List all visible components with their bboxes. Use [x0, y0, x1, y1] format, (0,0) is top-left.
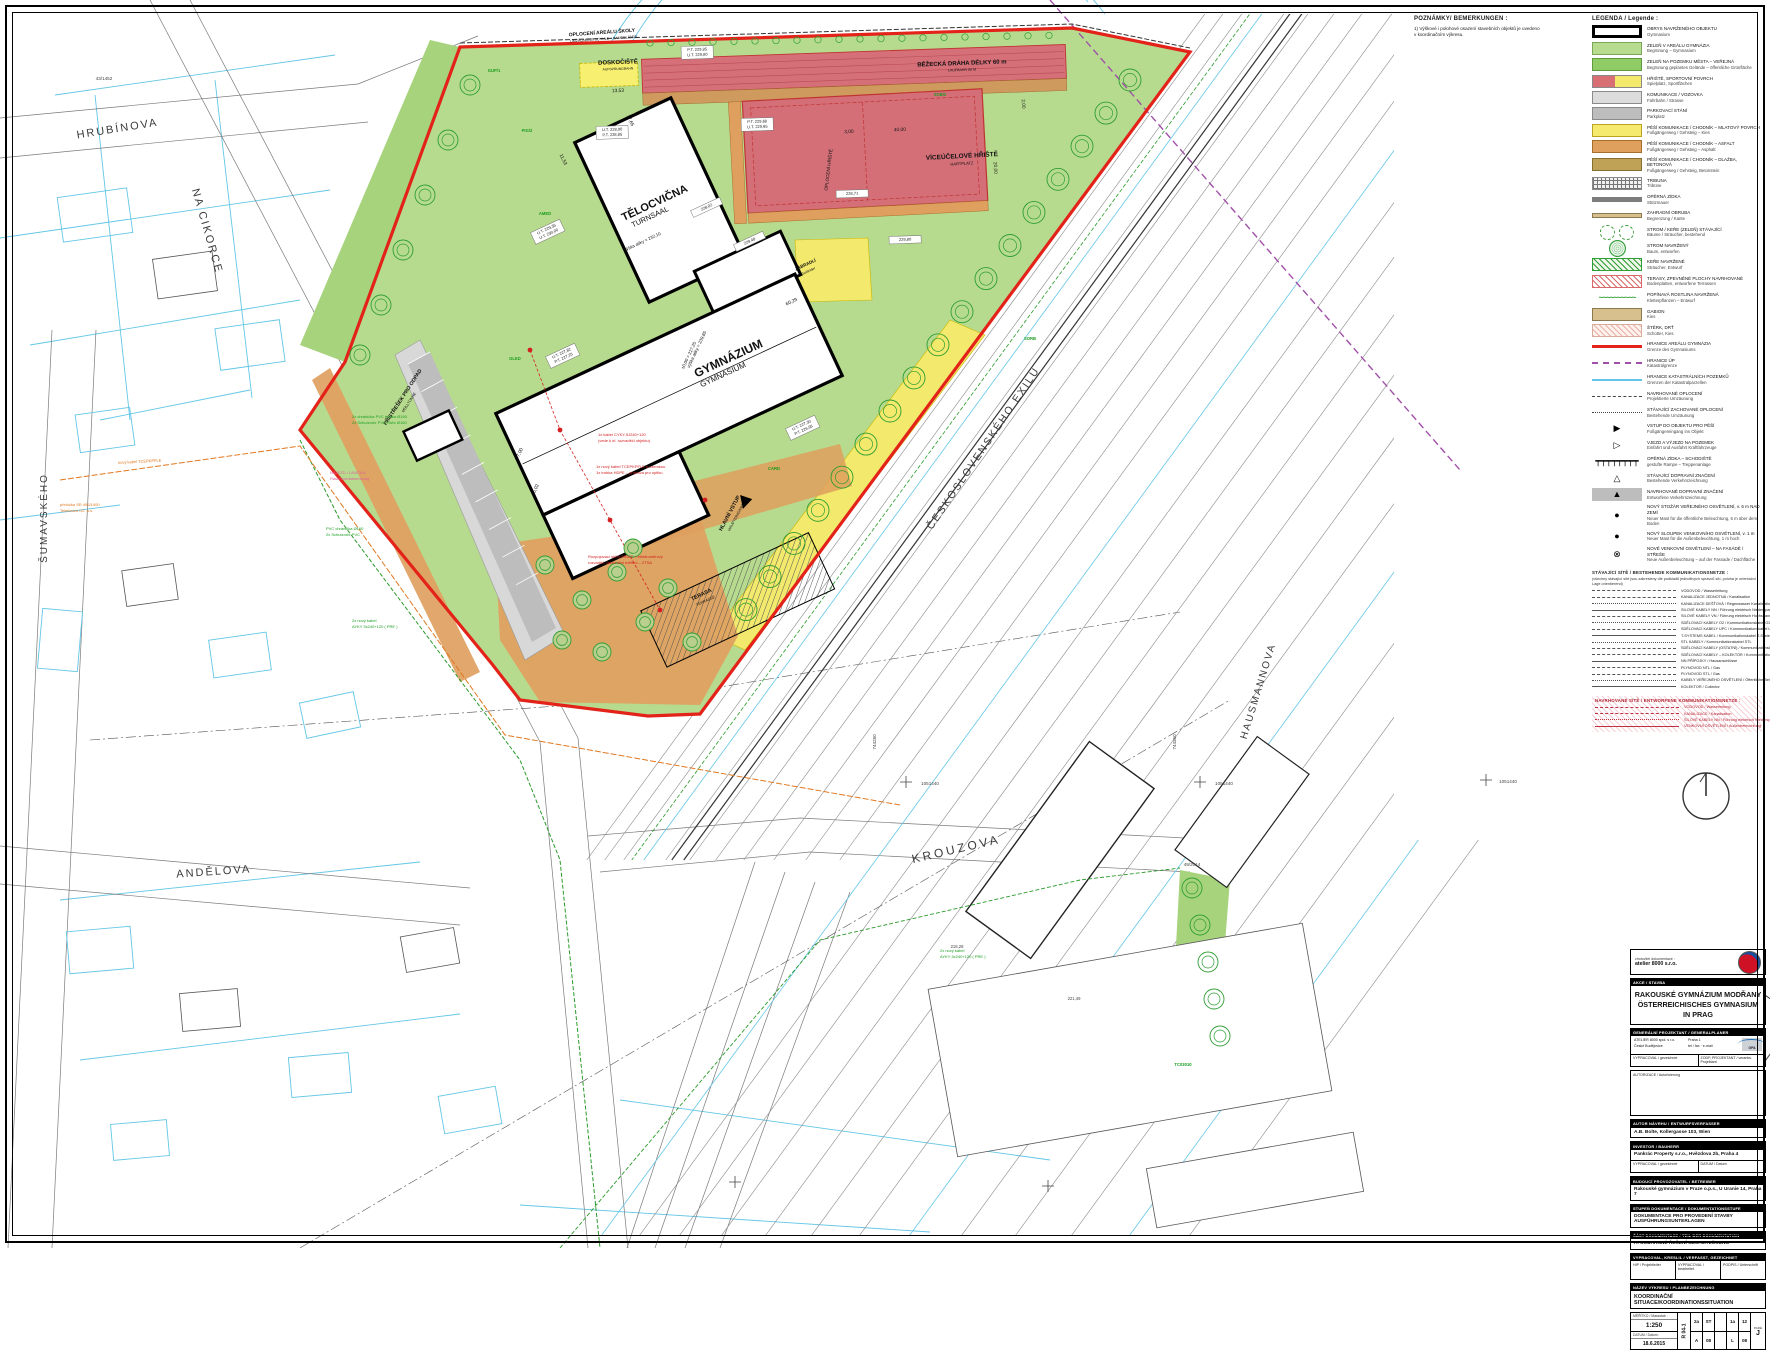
- map-label: 2x nový kabel: [940, 948, 965, 953]
- author-header: AUTOR NÁVRHU / ENTWURFSVERFASSER: [1631, 1120, 1765, 1127]
- grid-cell: A: [1691, 1332, 1703, 1350]
- legend-item: STROM / KEŘE (ZELEŇ) STÁVAJÍCÍBäume / St…: [1592, 226, 1762, 239]
- utility-line-swatch: [1592, 667, 1676, 668]
- legend-item: ▷VJEZD A VÝJEZD NA POZEMEKEinfahrt und A…: [1592, 439, 1762, 452]
- project-box: AKCE / STAVBA RAKOUSKÉ GYMNÁZIUM MODŘANY…: [1630, 978, 1766, 1025]
- team-header: VYPRACOVAL, KRESLIL / VERFASST, GEZEICHN…: [1631, 1254, 1765, 1261]
- utility-line-swatch: [1592, 622, 1676, 623]
- legend-item: ZAHRADNÍ OBRUBABegrenzung / Kante: [1592, 209, 1762, 222]
- existing-tree-icon: [1592, 226, 1642, 239]
- new-light-pole-icon: ●: [1592, 509, 1642, 522]
- grid-cell: ST: [1703, 1313, 1715, 1331]
- paved-path-swatch: [1592, 158, 1642, 171]
- map-label: 744360: [1172, 734, 1177, 750]
- vehicle-entrance-icon: ▷: [1592, 439, 1642, 452]
- utility-line-item: SDĚLOVACÍ KABELY – KOLEKTOR / Kommunikat…: [1592, 653, 1762, 657]
- utility-line-item: T-SYSTEMS KABEL / Kommunikationskabel T-…: [1592, 634, 1762, 638]
- grid-cell: L: [1727, 1332, 1739, 1350]
- legend-item-label: OPĚRNÁ ZÍDKAStützmauer: [1647, 194, 1681, 205]
- utility-line-item: KANALIZACE DEŠŤOVÁ / Regenwasser Kanalis…: [1592, 602, 1762, 606]
- responsible-cell: ZODP. PROJEKTANT / verantw. Projektant: [1699, 1055, 1766, 1067]
- legend-item: GABIONKies: [1592, 308, 1762, 321]
- map-label: 43/1452: [96, 76, 113, 81]
- map-label: 13,53: [612, 88, 625, 94]
- map-label: 3,00: [844, 129, 854, 135]
- utility-line-item: VODOVOD / Wasserleitung: [1592, 589, 1762, 593]
- legend-item-label: GABIONKies: [1647, 309, 1665, 320]
- utility-line-swatch: [1595, 719, 1679, 720]
- map-label: NÁJEZD / LAVIČKA: [330, 470, 366, 475]
- map-label: ŠUMAVSKÉHO: [37, 473, 50, 563]
- legend-item: ●NOVÝ STOŽÁR VEŘEJNÉHO OSVĚTLENÍ, v. 6 m…: [1592, 504, 1762, 526]
- utility-line-swatch: [1592, 661, 1676, 662]
- map-label: ANDĚLOVA: [176, 862, 252, 880]
- utility-line-swatch: [1592, 674, 1676, 675]
- legend-item-label: KOMUNIKACE / VOZOVKAFahrbahn / Strasse: [1647, 92, 1703, 103]
- gabion-swatch: [1592, 308, 1642, 321]
- utility-line-item: KABELY VEŘEJNÉHO OSVĚTLENÍ / Öffentliche…: [1592, 678, 1762, 682]
- legend-item-label: OPĚRNÁ ZÍDKA – SCHODIŠTĚgestufte Rampe –…: [1647, 456, 1712, 467]
- legend-item-label: ZAHRADNÍ OBRUBABegrenzung / Kante: [1647, 210, 1690, 221]
- plan-boundary-line: [1050, 0, 1460, 470]
- map-label: 2x chránička PVC trubka Ø160: [352, 414, 408, 419]
- svg-text:228,71: 228,71: [846, 191, 859, 196]
- legend-item: HRANICE KATASTRÁLNÍCH POZEMKŮGrenzen der…: [1592, 373, 1762, 386]
- utility-line-swatch: [1592, 635, 1676, 636]
- utility-line-swatch: [1592, 648, 1676, 649]
- utility-line-item: KOLEKTOR / Collector: [1592, 685, 1762, 689]
- investor-value: Pankrác Property s.r.o., Hvězdova 2b, Pr…: [1631, 1150, 1765, 1160]
- north-arrow-icon: [1683, 773, 1729, 819]
- site-plan-drawing: P.T. 229,85U.T. 229,80U.T. 228,90P.T. 22…: [0, 0, 1770, 1248]
- legend-item-label: NOVÝ SLOUPEK VENKOVNÍHO OSVĚTLENÍ, v. 1 …: [1647, 531, 1754, 542]
- author-box: AUTOR NÁVRHU / ENTWURFSVERFASSER A.B. Bo…: [1630, 1119, 1766, 1138]
- legend-item: STÁVAJÍCÍ ZACHOVANÉ OPLOCENÍBestehende U…: [1592, 406, 1762, 419]
- legend-title: LEGENDA / Legende :: [1592, 16, 1762, 22]
- pare-cell: PARÉ J: [1751, 1313, 1765, 1349]
- utility-line-swatch: [1592, 616, 1676, 617]
- grid-cell: 12: [1739, 1313, 1751, 1331]
- investor-header: INVESTOR / BAUHERR: [1631, 1142, 1765, 1149]
- utility-line-item: SILOVÉ KABELY NN / Führung elektrisch Ni…: [1592, 608, 1762, 612]
- legend-item-label: NAVRHOVANÉ DOPRAVNÍ ZNAČENÍEntworfene Ve…: [1647, 489, 1723, 500]
- legend-item-label: ZELEŇ NA POZEMKU MĚSTA – VEŘEJNÁBegrünun…: [1647, 59, 1752, 70]
- legend-item: ▲NAVRHOVANÉ DOPRAVNÍ ZNAČENÍEntworfene V…: [1592, 488, 1762, 501]
- map-label: (vede k el. rozvaděči objektu): [598, 438, 651, 443]
- map-label: nový kabel TCEPKPFLE: [118, 458, 162, 465]
- map-label: TC03010: [1174, 1062, 1192, 1067]
- operator-box: BUDOUCÍ PROVOZOVATEL / BETREIBER Rakousk…: [1630, 1176, 1766, 1200]
- operator-value: Rakouské gymnázium v Praze o.p.s., U Ura…: [1631, 1185, 1765, 1200]
- legend-item-label: NOVÝ STOŽÁR VEŘEJNÉHO OSVĚTLENÍ, v. 6 m …: [1647, 504, 1762, 526]
- legend-item-label: POPÍNAVÁ ROSTLINA NAVRŽENÁKletterpflanze…: [1647, 292, 1719, 303]
- legend-item: ⊗NOVÉ VENKOVNÍ OSVĚTLENÍ – NA FASÁDĚ / S…: [1592, 546, 1762, 563]
- map-label: GUP/1: [488, 68, 501, 73]
- map-label: 1051440: [1499, 779, 1517, 784]
- utility-line-item: VENKOVNÍ OSVĚTLENÍ / Außenbeleuchtung: [1595, 724, 1759, 728]
- map-label: 49/2014: [1184, 862, 1201, 867]
- legend-item: ┯┯┯┯┯┯┯┯OPĚRNÁ ZÍDKA – SCHODIŠTĚgestufte…: [1592, 455, 1762, 468]
- grid-cell: 08: [1739, 1332, 1751, 1350]
- map-label: 2,00: [1020, 99, 1026, 109]
- firm-box: zhotovitel dokumentace : atelier 8000 s.…: [1630, 949, 1766, 975]
- investor-box: INVESTOR / BAUHERR Pankrác Property s.r.…: [1630, 1141, 1766, 1173]
- new-light-bollard-icon: ●: [1592, 530, 1642, 543]
- parking-swatch: [1592, 107, 1642, 120]
- legend-item-label: VSTUP DO OBJEKTU PRO PĚŠÍFußgängereingan…: [1647, 423, 1714, 434]
- plan-boundary-line: [1592, 362, 1642, 364]
- legend-item: KOMUNIKACE / VOZOVKAFahrbahn / Strasse: [1592, 91, 1762, 104]
- legend-item: ZELEŇ NA POZEMKU MĚSTA – VEŘEJNÁBegrünun…: [1592, 58, 1762, 71]
- utility-line-item: PLYNOVOD STL / Gas: [1592, 672, 1762, 676]
- utility-line-swatch: [1592, 680, 1676, 681]
- map-label: HRUBÍNOVA: [76, 116, 160, 142]
- map-label: SOB/2: [934, 92, 947, 97]
- drawn-by-cell: VYPRACOVAL / gezeichnet: [1631, 1055, 1699, 1067]
- map-label: 1x kabel CYKY-5J240+120: [598, 432, 647, 437]
- scale-label: MĚŘÍTKO / Massstab :: [1631, 1313, 1677, 1320]
- legend-item: HŘIŠTĚ, SPORTOVNÍ POVRCHSpielplatz, Spor…: [1592, 75, 1762, 88]
- utility-line-swatch: [1592, 597, 1676, 598]
- building-outline-swatch: [1592, 25, 1642, 38]
- utility-line-item: SDĚLOVACÍ KABELY O2 / Kommunikationskabe…: [1592, 621, 1762, 625]
- stage-box: STUPEŇ DOKUMENTACE / DOKUMENTATIONSSTUFE…: [1630, 1204, 1766, 1228]
- project-header: AKCE / STAVBA: [1631, 979, 1765, 986]
- legend-item-label: PARKOVACÍ STÁNÍParkplatz: [1647, 108, 1687, 119]
- legend-item: ŠTĚRK, DRŤSchotter, Kies: [1592, 324, 1762, 337]
- notes-title: POZNÁMKY/ BEMERKUNGEN :: [1414, 16, 1582, 22]
- utility-line-item: VODOVOD / Wasserleitung: [1595, 705, 1759, 709]
- utility-line-item: SILOVÉ KABELY VN / Führung elektrisch Ho…: [1592, 614, 1762, 618]
- svg-text:P.T. 228,85: P.T. 228,85: [602, 132, 623, 138]
- utility-line-item: SDĚLOVACÍ KABELY UPC / Kommunikationskab…: [1592, 627, 1762, 631]
- utility-line-swatch: [1592, 642, 1676, 643]
- firm-name: atelier 8000 s.r.o.: [1635, 961, 1677, 967]
- utility-line-swatch: [1592, 629, 1676, 630]
- terrace-hatch-swatch: [1592, 275, 1642, 288]
- title-block: zhotovitel dokumentace : atelier 8000 s.…: [1630, 946, 1766, 1350]
- stage-value: DOKUMENTACE PRO PROVEDENÍ STAVBY AUSFÜHR…: [1631, 1212, 1765, 1227]
- existing-fence-line: [1592, 412, 1642, 413]
- scale-value: 1:250: [1631, 1320, 1677, 1331]
- new-utilities-block: NAVRHOVANÉ SÍTĚ / ENTWORFENE KOMMUNIKATI…: [1592, 696, 1762, 733]
- legend-item-label: PĚŠÍ KOMUNIKACE / CHODNÍK – ASFALTFußgän…: [1647, 141, 1734, 152]
- utility-line-swatch: [1592, 654, 1676, 655]
- legend-item: HRANICE AREÁLU GYMNÁZIAGrenze des Gymnas…: [1592, 340, 1762, 353]
- plan-name-header: NÁZEV VÝKRESU / PLANBEZEICHNUNG: [1631, 1284, 1765, 1291]
- pedestrian-entrance-icon: ▶: [1592, 422, 1642, 435]
- asphalt-path-swatch: [1592, 140, 1642, 153]
- garden-curb-swatch: [1592, 213, 1642, 218]
- legend-item: TRIBUNATribüne: [1592, 177, 1762, 190]
- site-boundary-line: [1592, 345, 1642, 348]
- map-label: 1x trubka HDPE – příprava pro optiku: [596, 470, 662, 475]
- svg-text:U.T. 229,65: U.T. 229,65: [747, 124, 768, 130]
- general-planner-header: GENERÁLNÍ PROJEKTANT / GENERALPLANER: [1631, 1029, 1765, 1036]
- legend-item: POPÍNAVÁ ROSTLINA NAVRŽENÁKletterpflanze…: [1592, 291, 1762, 304]
- legend-item-label: PĚŠÍ KOMUNIKACE / CHODNÍK – DLAŽBA, BETO…: [1647, 157, 1762, 174]
- author-value: A.B. Bolte, Kollergasse 103, Wien: [1631, 1128, 1765, 1138]
- map-label: Telefónica O2, a.s.: [60, 508, 93, 513]
- gpa-logo-icon: GPA: [1742, 1038, 1762, 1051]
- map-label: AYKY 3x240+120 ( PRE ): [940, 954, 986, 959]
- grid-cell: [1715, 1313, 1727, 1331]
- climbing-plant-icon: [1592, 291, 1642, 304]
- legend-item-label: PĚŠÍ KOMUNIKACE / CHODNÍK – MLATOVÝ POVR…: [1647, 125, 1760, 136]
- map-label: 744280: [872, 734, 877, 750]
- legend-item: TERASY, ZPEVNĚNÉ PLOCHY NAVRHOVANÉBodenp…: [1592, 275, 1762, 288]
- legend-item: ▶VSTUP DO OBJEKTU PRO PĚŠÍFußgängereinga…: [1592, 422, 1762, 435]
- utility-line-swatch: [1595, 707, 1679, 708]
- map-label: 2x Schutzrohr PVC Rohr Ø160: [352, 420, 407, 425]
- legend-item-label: TRIBUNATribüne: [1647, 178, 1667, 189]
- legend-item-label: HŘIŠTĚ, SPORTOVNÍ POVRCHSpielplatz, Spor…: [1647, 76, 1713, 87]
- legend-items: OBRYS NAVRŽENÉHO OBJEKTUGymnasiumZELEŇ V…: [1592, 25, 1762, 562]
- legend-item-label: OBRYS NAVRŽENÉHO OBJEKTUGymnasium: [1647, 26, 1717, 37]
- map-label: HAUSMANNOVA: [1239, 642, 1279, 740]
- new-tree-icon: [1592, 242, 1642, 255]
- team-box: VYPRACOVAL, KRESLIL / VERFASST, GEZEICHN…: [1630, 1253, 1766, 1280]
- legend-item: STROM NAVRŽENÝBaum, entworfen: [1592, 242, 1762, 255]
- map-label: 1051440: [1215, 781, 1233, 786]
- legend-item: ZELEŇ V AREÁLU GYMNÁZIABegrünung – Gymna…: [1592, 42, 1762, 55]
- legend-item-label: STÁVAJÍCÍ ZACHOVANÉ OPLOCENÍBestehende U…: [1647, 407, 1723, 418]
- utility-line-item: KANALIZACE / Kanalisation: [1595, 712, 1759, 716]
- facade-light-icon: ⊗: [1592, 548, 1642, 561]
- svg-text:U.T. 229,80: U.T. 229,80: [687, 52, 708, 58]
- stage-header: STUPEŇ DOKUMENTACE / DOKUMENTATIONSSTUFE: [1631, 1205, 1765, 1212]
- map-label: 40,00: [894, 127, 907, 134]
- notes-body: 1) Výškové i polohové osazení stavebních…: [1414, 26, 1582, 39]
- legend-item-label: HRANICE ÚPKatastralgrenze: [1647, 358, 1677, 369]
- legend-item: HRANICE ÚPKatastralgrenze: [1592, 357, 1762, 370]
- map-label: PVC chránička Ø160: [326, 526, 364, 531]
- date-value: 18.6.2015: [1631, 1339, 1677, 1349]
- legend-item: OPĚRNÁ ZÍDKAStützmauer: [1592, 193, 1762, 206]
- map-label: KROUZOVA: [910, 832, 1001, 866]
- map-label: 1x nový kabel TCEPKPFLE s uzemkou: [596, 464, 665, 469]
- operator-header: BUDOUCÍ PROVOZOVATEL / BETREIBER: [1631, 1177, 1765, 1184]
- map-label: AMED: [539, 211, 551, 216]
- plan-name-box: NÁZEV VÝKRESU / PLANBEZEICHNUNG KOORDINA…: [1630, 1283, 1766, 1309]
- svg-text:229,80: 229,80: [899, 237, 912, 242]
- part-value: A. SOUHRNNÉ ŘEŠENÍ GESAMTLÖSUNG: [1631, 1239, 1765, 1249]
- legend-item: OBRYS NAVRŽENÉHO OBJEKTUGymnasium: [1592, 25, 1762, 38]
- elevation-label: P.T. 229,68U.T. 229,65: [741, 117, 773, 131]
- drawing-number: R 04-1: [1678, 1313, 1691, 1349]
- stairs-ramp-icon: ┯┯┯┯┯┯┯┯: [1592, 455, 1642, 468]
- map-label: přeložka SR 496/1400: [60, 502, 100, 507]
- utility-line-swatch: [1595, 713, 1679, 714]
- map-label: 221,49: [1068, 996, 1081, 1001]
- map-label: rozvaděč, fakturační měření – 2TSA: [588, 560, 652, 565]
- new-fence-line: [1592, 396, 1642, 397]
- grid-cell: 1a: [1727, 1313, 1739, 1331]
- grid-cell: 08: [1703, 1332, 1715, 1350]
- legend-item: ●NOVÝ SLOUPEK VENKOVNÍHO OSVĚTLENÍ, v. 1…: [1592, 530, 1762, 543]
- retaining-wall-swatch: [1592, 197, 1642, 202]
- existing-utilities-block: STÁVAJÍCÍ SÍTĚ / BESTEHENDE KOMMUNIKATIO…: [1592, 570, 1762, 689]
- part-header: ČÁST DOKUMENTACE / TEIL DER DOKUMENTATIO…: [1631, 1232, 1765, 1239]
- grid-cell: [1715, 1332, 1727, 1350]
- legend-panel: LEGENDA / Legende : OBRYS NAVRŽENÉHO OBJ…: [1592, 16, 1762, 732]
- cadastre-boundary-line: [1592, 379, 1642, 381]
- number-grid: MĚŘÍTKO / Massstab : 1:250 DATUM / Datum…: [1630, 1312, 1766, 1350]
- utility-line-swatch: [1595, 726, 1679, 727]
- grid-cell: 2a: [1691, 1313, 1703, 1331]
- notes-panel: POZNÁMKY/ BEMERKUNGEN : 1) Výškové i pol…: [1414, 16, 1582, 39]
- road-swatch: [1592, 91, 1642, 104]
- legend-item: PĚŠÍ KOMUNIKACE / CHODNÍK – ASFALTFußgän…: [1592, 140, 1762, 153]
- map-label: 1051440: [921, 781, 939, 786]
- existing-utilities-title: STÁVAJÍCÍ SÍTĚ / BESTEHENDE KOMMUNIKATIO…: [1592, 570, 1762, 575]
- utility-line-item: STL KABELY / Kommunikationskabel STL: [1592, 640, 1762, 644]
- legend-item-label: KEŘE NAVRŽENÉSträucher, Entwurf: [1647, 259, 1685, 270]
- school-green-swatch: [1592, 42, 1642, 55]
- utility-line-swatch: [1592, 590, 1676, 591]
- map-label: 20,00: [992, 162, 999, 175]
- legend-item: PĚŠÍ KOMUNIKACE / CHODNÍK – DLAŽBA, BETO…: [1592, 157, 1762, 174]
- map-label: 2x nový kabel: [352, 618, 377, 623]
- legend-item-label: NOVÉ VENKOVNÍ OSVĚTLENÍ – NA FASÁDĚ / ST…: [1647, 546, 1762, 563]
- utility-line-item: NN PŘÍPOJKY / Hausanschlüsse: [1592, 659, 1762, 663]
- map-label: PIG/2: [522, 128, 533, 133]
- new-traffic-sign-icon: ▲: [1592, 488, 1642, 501]
- existing-traffic-sign-icon: △: [1592, 472, 1642, 485]
- date-label: DATUM / Datum :: [1631, 1332, 1677, 1339]
- utility-line-swatch: [1592, 610, 1676, 611]
- map-label: NA CIKORCE: [189, 187, 225, 275]
- legend-item-label: STÁVAJÍCÍ DOPRAVNÍ ZNAČENÍBestehende Ver…: [1647, 473, 1715, 484]
- legend-item-label: ŠTĚRK, DRŤSchotter, Kies: [1647, 325, 1674, 336]
- elevation-label: 228,71: [836, 189, 868, 198]
- legend-item-label: ZELEŇ V AREÁLU GYMNÁZIABegrünung – Gymna…: [1647, 43, 1710, 54]
- sports-surface-swatch: [1592, 75, 1642, 88]
- legend-item: NAVRHOVANÉ OPLOCENÍProjektierte Umzäunun…: [1592, 390, 1762, 403]
- map-label: AYKY 3x240+120 ( PRE ): [352, 624, 398, 629]
- map-label: GLED: [509, 356, 521, 361]
- general-planner-box: GENERÁLNÍ PROJEKTANT / GENERALPLANER ATE…: [1630, 1028, 1766, 1068]
- legend-item-label: NAVRHOVANÉ OPLOCENÍProjektierte Umzäunun…: [1647, 391, 1702, 402]
- legend-item-label: STROM / KEŘE (ZELEŇ) STÁVAJÍCÍBäume / St…: [1647, 227, 1722, 238]
- elevation-label: P.T. 229,85U.T. 229,80: [681, 45, 713, 59]
- new-shrub-swatch: [1592, 258, 1642, 271]
- legend-item-label: HRANICE AREÁLU GYMNÁZIAGrenze des Gymnas…: [1647, 341, 1711, 352]
- legend-item-label: VJEZD A VÝJEZD NA POZEMEKEinfahrt und Au…: [1647, 440, 1717, 451]
- utility-line-item: SDĚLOVACÍ KABELY (OSTATNÍ) / Kommunikati…: [1592, 646, 1762, 650]
- atelier-logo-icon: [1738, 951, 1761, 974]
- authorization-box: AUTORIZACE / Autorisierung: [1630, 1070, 1766, 1116]
- map-label: Rasenbordabsenkung: [330, 476, 369, 481]
- map-label: SORB: [1024, 336, 1036, 341]
- gravel-swatch: [1592, 324, 1642, 337]
- utility-line-item: PLYNOVOD NTL / Gas: [1592, 666, 1762, 670]
- gravel-path-swatch: [1592, 124, 1642, 137]
- utility-line-item: SILOVÉ KABELY NN / Führung elektrisch Ni…: [1595, 718, 1759, 722]
- map-label: Rozpojovací skříň SR502 + elektroměrový: [588, 554, 663, 559]
- legend-item: KEŘE NAVRŽENÉSträucher, Entwurf: [1592, 258, 1762, 271]
- project-title: RAKOUSKÉ GYMNÁZIUM MODŘANY ÖSTERREICHISC…: [1631, 986, 1765, 1023]
- elevation-label: U.T. 228,90P.T. 228,85: [596, 125, 628, 139]
- map-label: 2x Schutzrohr PVC: [326, 532, 360, 537]
- public-green-swatch: [1592, 58, 1642, 71]
- legend-item: PĚŠÍ KOMUNIKACE / CHODNÍK – MLATOVÝ POVR…: [1592, 124, 1762, 137]
- part-box: ČÁST DOKUMENTACE / TEIL DER DOKUMENTATIO…: [1630, 1231, 1766, 1250]
- elevation-label: 229,80: [889, 235, 921, 244]
- utility-line-swatch: [1592, 686, 1676, 687]
- utility-line-swatch: [1592, 603, 1676, 604]
- legend-item-label: HRANICE KATASTRÁLNÍCH POZEMKŮGrenzen der…: [1647, 374, 1729, 385]
- legend-item-label: TERASY, ZPEVNĚNÉ PLOCHY NAVRHOVANÉBodenp…: [1647, 276, 1743, 287]
- new-utilities-title: NAVRHOVANÉ SÍTĚ / ENTWORFENE KOMMUNIKATI…: [1595, 698, 1759, 703]
- plan-name-value: KOORDINAČNÍ SITUACE/KOORDINATIONSSITUATI…: [1631, 1291, 1765, 1308]
- legend-item: △STÁVAJÍCÍ DOPRAVNÍ ZNAČENÍBestehende Ve…: [1592, 472, 1762, 485]
- legend-item-label: STROM NAVRŽENÝBaum, entworfen: [1647, 243, 1689, 254]
- utility-line-item: KANALIZACE JEDNOTNÁ / Kanalisation: [1592, 595, 1762, 599]
- map-label: CARD: [768, 466, 780, 471]
- existing-utilities-note: (všechny stávající sítě jsou zakresleny …: [1592, 577, 1762, 587]
- legend-item: PARKOVACÍ STÁNÍParkplatz: [1592, 107, 1762, 120]
- tribune-swatch: [1592, 177, 1642, 190]
